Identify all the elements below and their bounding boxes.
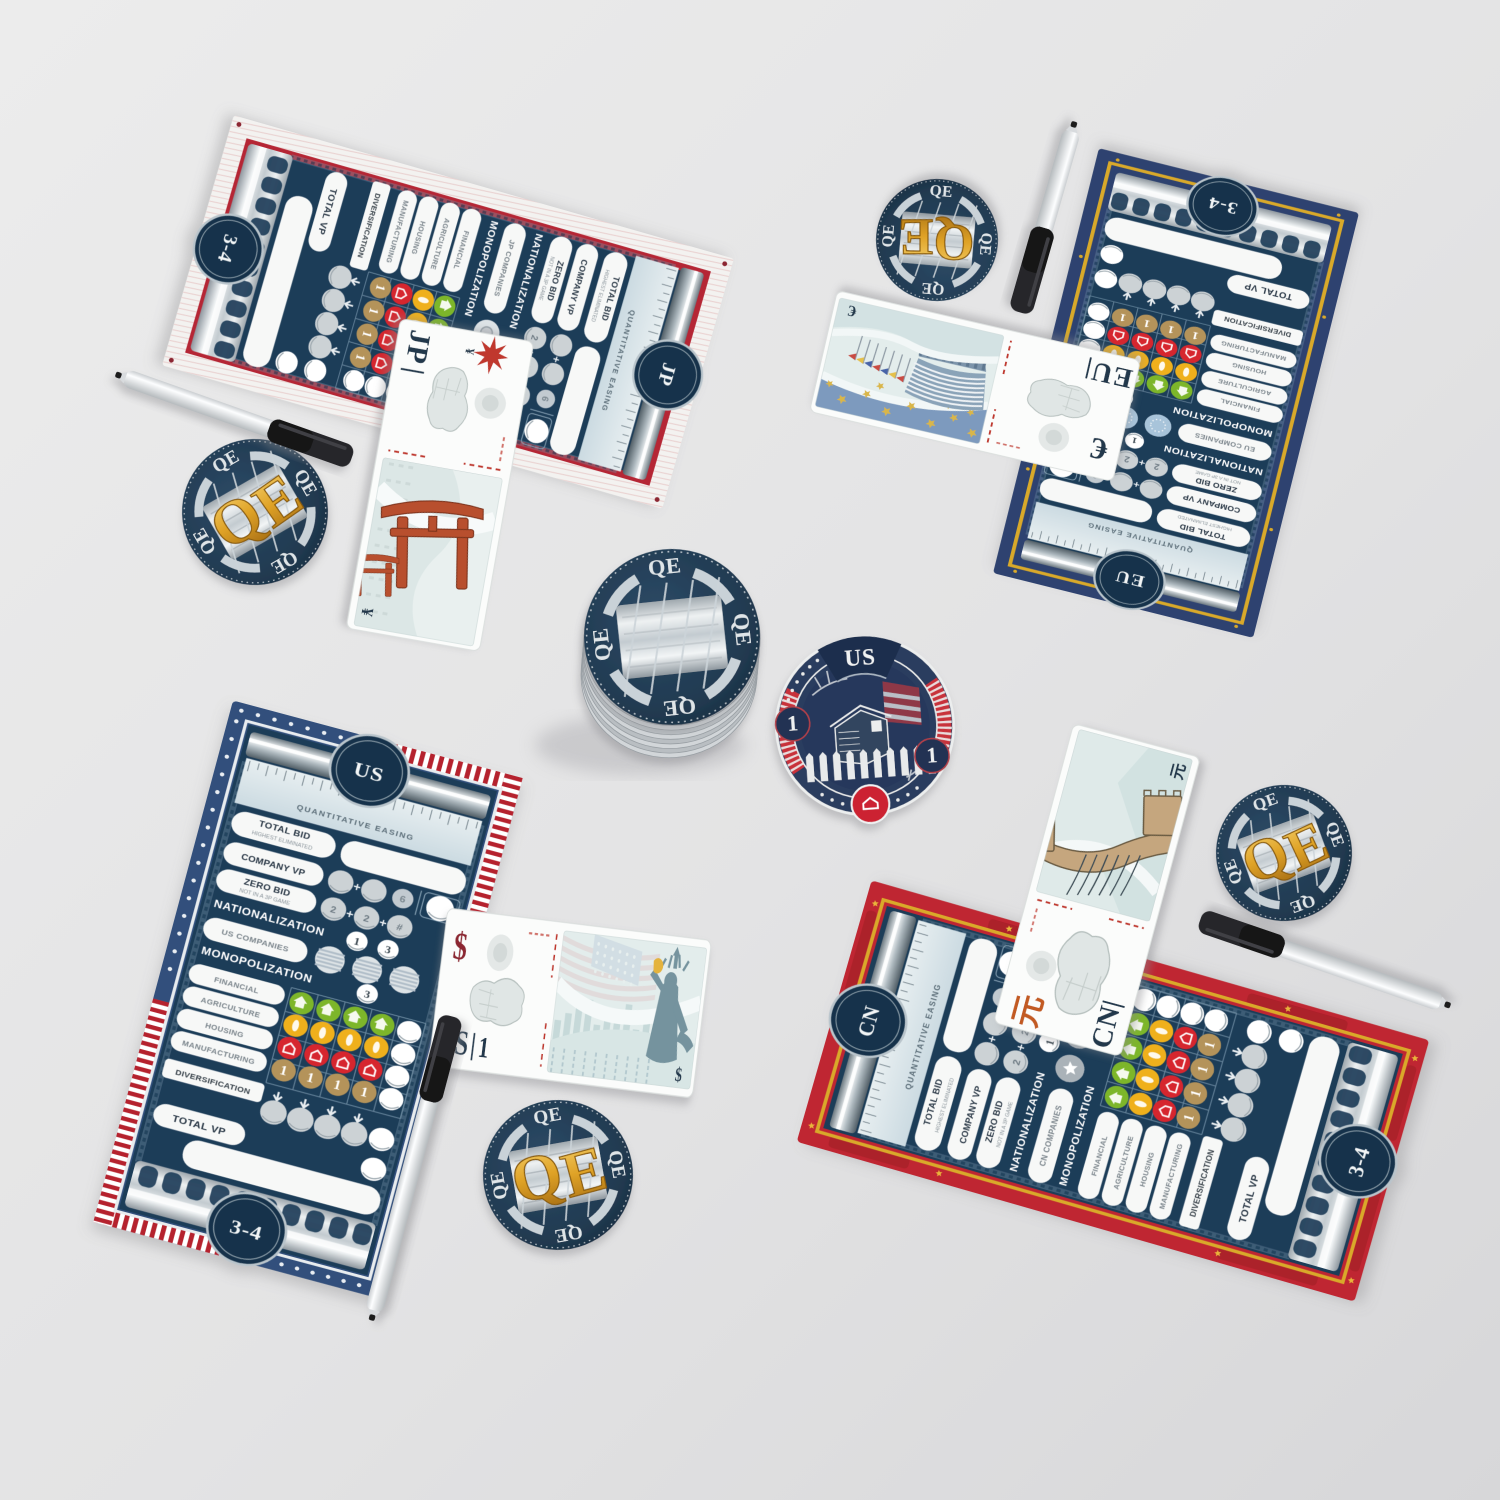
svg-text:US: US (844, 644, 877, 671)
svg-text:QE: QE (920, 279, 945, 298)
svg-text:QE: QE (587, 627, 615, 663)
svg-text:1: 1 (926, 742, 939, 768)
svg-text:1: 1 (786, 710, 799, 736)
svg-text:QE: QE (929, 182, 954, 201)
svg-text:Q: Q (934, 213, 974, 270)
svg-text:QE: QE (728, 612, 756, 648)
svg-text:QE: QE (879, 223, 898, 248)
svg-text:E: E (899, 208, 934, 265)
svg-text:QE: QE (976, 232, 995, 257)
svg-text:QE: QE (647, 552, 683, 580)
svg-text:QE: QE (662, 693, 698, 721)
svg-text:JP: JP (399, 327, 437, 366)
